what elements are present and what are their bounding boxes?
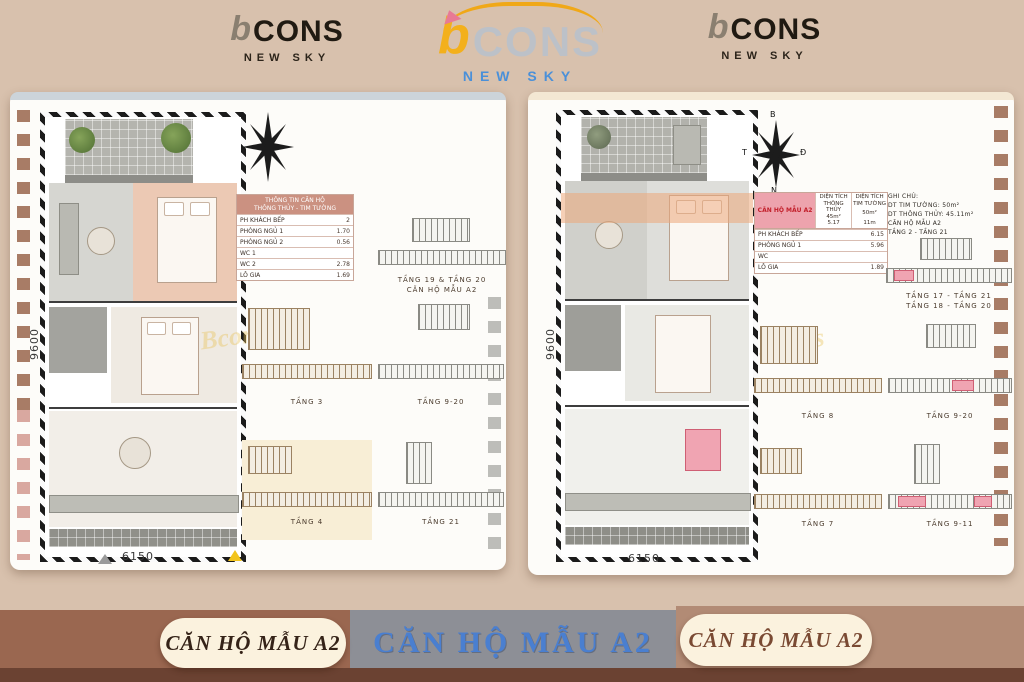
- table-row: PHÒNG NGỦ 15.96: [755, 240, 887, 251]
- sofa-icon: [59, 203, 79, 275]
- keyplan-drawing: [406, 442, 432, 484]
- dimension-marker-icon: [98, 554, 112, 564]
- caption-pill-right: CĂN HỘ MẪU A2: [680, 614, 872, 666]
- living-room: [49, 183, 133, 301]
- plant-icon: [587, 125, 611, 149]
- keyplan-caption: TẦNG 3: [242, 398, 372, 408]
- keyplan-caption: TẦNG 4: [242, 518, 372, 528]
- table-icon: [87, 227, 115, 255]
- keyplan-top: TẦNG 19 & TẦNG 20 CĂN HỘ MẪU A2: [378, 210, 506, 310]
- newsky-wordmark: NEW SKY: [244, 52, 330, 64]
- table-row: PH KHÁCH BẾP6.15: [755, 229, 887, 240]
- table-row: WC 22.78: [237, 258, 353, 269]
- keyplan-caption: TẦNG 8: [754, 412, 882, 422]
- keyplan-drawing: [378, 250, 506, 265]
- floorplan-line: [556, 110, 758, 562]
- caption-text: CĂN HỘ MẪU A2: [165, 631, 340, 656]
- pillow-icon: [164, 202, 184, 216]
- bcons-b-icon: b: [230, 10, 251, 49]
- area-table: CĂN HỘ MẪU A2 DIỆN TÍCH THÔNG THỦY 45m² …: [754, 192, 888, 274]
- bcons-logo-dark-right: b CONS NEW SKY: [702, 8, 827, 62]
- keyplan-drawing: [920, 238, 972, 260]
- table-row: LÔ GIA1.89: [755, 262, 887, 273]
- brochure-page: b CONS NEW SKY b CONS NEW SKY b CONS NEW…: [0, 0, 1024, 682]
- keyplan-caption: TẦNG 21: [378, 518, 504, 528]
- compass-west-label: T: [742, 148, 747, 157]
- keyplan-caption: TẦNG 9-20: [378, 398, 504, 408]
- bathroom: [565, 305, 621, 371]
- highlight-band: [561, 193, 753, 223]
- bed-icon: [141, 317, 199, 395]
- keyplan-bot-right: TẦNG 21: [378, 440, 504, 540]
- compass-rose-icon: B Đ N T: [744, 114, 808, 194]
- pink-furniture-icon: [685, 429, 721, 471]
- unit-info-table: THÔNG TIN CĂN HỘ THÔNG THỦY - TIM TƯỜNG …: [236, 194, 354, 281]
- bcons-wordmark: CONS: [473, 18, 602, 66]
- keyplan-mid-left: TẦNG 3: [242, 302, 372, 420]
- height-dimension: 9600: [544, 328, 557, 360]
- keyplan-mid-right: TẦNG 9-20: [888, 322, 1012, 434]
- card-top-strip: [10, 92, 506, 100]
- bathroom: [49, 307, 107, 373]
- width-dimension: 6150: [628, 552, 660, 565]
- plant-icon: [161, 123, 191, 153]
- bedroom-2: [111, 307, 237, 403]
- keyplan-drawing: [248, 308, 310, 350]
- keyplan-caption: TẦNG 9-11: [888, 520, 1012, 530]
- keyplan-drawing: [926, 324, 976, 348]
- keyplan-highlight: [898, 496, 926, 507]
- notes-block: GHI CHÚ: DT TIM TƯỜNG: 50m² DT THÔNG THỦ…: [888, 192, 1006, 237]
- bed-icon: [655, 315, 711, 393]
- table-row: PHÒNG NGỦ 20.56: [237, 236, 353, 247]
- film-edge-left-lower: [17, 410, 30, 560]
- table-highlight-cell: CĂN HỘ MẪU A2: [755, 193, 815, 228]
- keyplan-caption: TẦNG 7: [754, 520, 882, 530]
- keyplan-bot-left: TẦNG 4: [242, 440, 372, 540]
- pillow-icon: [147, 322, 166, 335]
- caption-pill-left: CĂN HỘ MẪU A2: [160, 618, 346, 668]
- bcons-logo-dark-left: b CONS NEW SKY: [222, 10, 352, 64]
- balcony-door-wall: [581, 173, 707, 181]
- loggia: [565, 527, 749, 545]
- plant-icon: [69, 127, 95, 153]
- newsky-wordmark: NEW SKY: [463, 68, 577, 84]
- caption-text: CĂN HỘ MẪU A2: [373, 626, 653, 660]
- kitchen-counter-icon: [565, 493, 751, 511]
- keyplan-bot-right: TẦNG 9-11: [888, 444, 1012, 544]
- table-row: LÔ GIA1.69: [237, 269, 353, 280]
- keyplan-drawing: [248, 446, 292, 474]
- pillow-icon: [190, 202, 210, 216]
- table-col-header: DIỆN TÍCH THÔNG THỦY 45m² 5.17: [815, 193, 851, 228]
- caption-center: CĂN HỘ MẪU A2: [350, 618, 676, 668]
- balcony-room: [65, 119, 193, 175]
- dimension-marker-icon: [228, 550, 242, 561]
- film-edge-left: [17, 110, 30, 410]
- compass-east-label: Đ: [800, 148, 806, 157]
- keyplan-drawing: [914, 444, 940, 484]
- wall: [49, 407, 237, 409]
- keyplan-drawing: [754, 494, 882, 509]
- kitchen-dining-room: [49, 411, 237, 527]
- bcons-logo-color-center: b CONS NEW SKY: [415, 6, 625, 84]
- keyplan-drawing: [378, 364, 504, 379]
- kitchen-dining-room: [565, 409, 749, 525]
- table-title: THÔNG TIN CĂN HỘ THÔNG THỦY - TIM TƯỜNG: [237, 195, 353, 214]
- height-dimension: 9600: [28, 328, 41, 360]
- keyplan-drawing: [760, 448, 802, 474]
- keyplan-caption: TẦNG 19 & TẦNG 20 CĂN HỘ MẪU A2: [378, 276, 506, 296]
- bed-icon: [157, 197, 217, 283]
- keyplan-drawing: [378, 492, 504, 507]
- pillow-icon: [172, 322, 191, 335]
- bedroom-2: [625, 305, 749, 401]
- keyplan-highlight: [894, 270, 914, 281]
- dining-table-icon: [119, 437, 151, 469]
- compass-north-label: B: [770, 110, 776, 119]
- keyplan-bot-left: TẦNG 7: [754, 444, 882, 544]
- keyplan-highlight: [974, 496, 992, 507]
- bcons-wordmark: CONS: [731, 13, 822, 47]
- table-row: WC 1: [237, 247, 353, 258]
- table-row: PHÒNG NGỦ 11.70: [237, 225, 353, 236]
- keyplan-drawing: [888, 378, 1012, 393]
- wall: [565, 299, 749, 301]
- balcony-room: [581, 117, 707, 173]
- keyplan-drawing: [754, 378, 882, 393]
- caption-text: CĂN HỘ MẪU A2: [688, 628, 863, 653]
- table-row: PH KHÁCH BẾP2: [237, 214, 353, 225]
- table-col-header: DIỆN TÍCH TIM TƯỜNG 50m² 11m: [851, 193, 887, 228]
- card-top-strip: [528, 92, 1014, 100]
- keyplan-drawing: [242, 364, 372, 379]
- left-floorplan-card: Bcons 9600 6150 THÔNG TIN CĂN HỘ THÔNG T…: [10, 92, 506, 570]
- keyplan-caption: TẦNG 9-20: [888, 412, 1012, 422]
- keyplan-drawing: [418, 304, 470, 330]
- keyplan-caption: TẦNG 17 - TẦNG 21 TẦNG 18 - TẦNG 20: [886, 292, 1012, 312]
- keyplan-top: TẦNG 17 - TẦNG 21 TẦNG 18 - TẦNG 20: [886, 236, 1012, 336]
- keyplan-drawing: [760, 326, 818, 364]
- footer-bottom-strip: [0, 668, 1024, 682]
- wall: [565, 405, 749, 407]
- bcons-wordmark: CONS: [253, 15, 344, 49]
- newsky-wordmark: NEW SKY: [721, 50, 807, 62]
- keyplan-mid-right: TẦNG 9-20: [378, 302, 504, 420]
- balcony-door-wall: [65, 175, 193, 183]
- keyplan-drawing: [412, 218, 470, 242]
- table-icon: [595, 221, 623, 249]
- bench-icon: [673, 125, 701, 165]
- bcons-b-icon: b: [708, 8, 729, 47]
- compass-rose-icon: [238, 110, 298, 186]
- wall: [49, 301, 237, 303]
- keyplan-mid-left: TẦNG 8: [754, 322, 882, 434]
- table-header: CĂN HỘ MẪU A2 DIỆN TÍCH THÔNG THỦY 45m² …: [755, 193, 887, 229]
- keyplan-highlight: [952, 380, 974, 391]
- bedroom-1: [133, 183, 237, 301]
- kitchen-counter-icon: [49, 495, 239, 513]
- width-dimension: 6150: [122, 550, 154, 563]
- right-floorplan-card: Bcons 9600 6150 B Đ N T CĂN HỘ MẪU A2 DI…: [528, 92, 1014, 575]
- loggia: [49, 529, 237, 547]
- table-row: WC: [755, 251, 887, 262]
- keyplan-drawing: [242, 492, 372, 507]
